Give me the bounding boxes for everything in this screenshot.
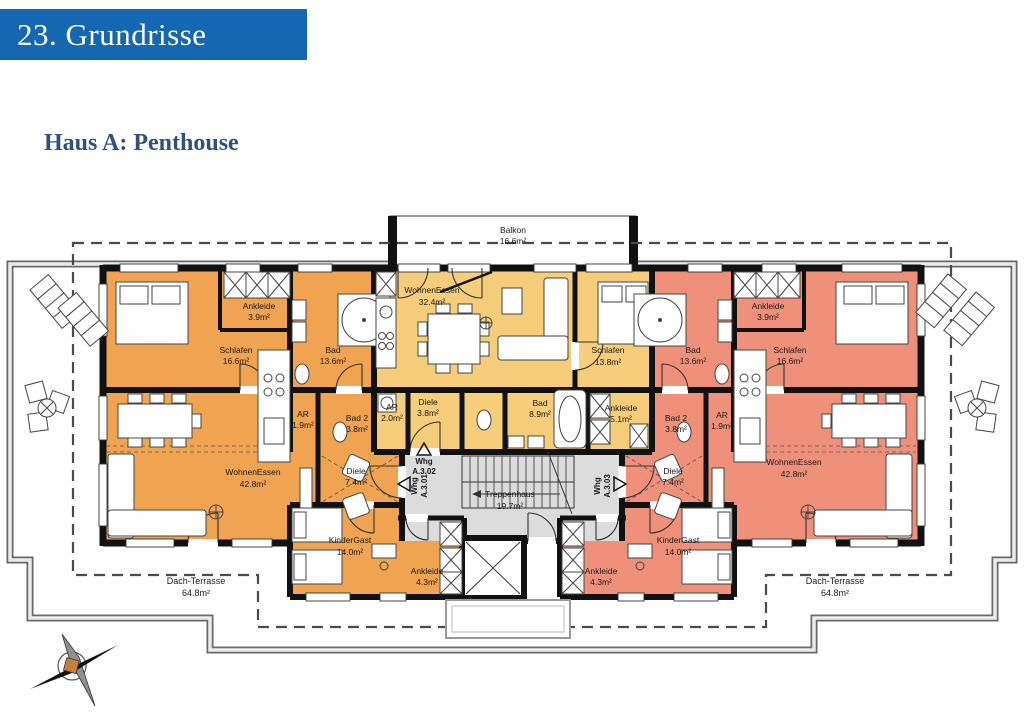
label-whg-a301-l2: A.3.01	[420, 474, 429, 498]
label-a301-schlafen-area: 16.6m²	[223, 356, 250, 366]
label-terrasse-left-area: 64.8m²	[182, 588, 210, 598]
label-a303-ankleide-area: 3.9m²	[757, 312, 779, 322]
label-a303-bad-name: Bad	[685, 345, 700, 355]
label-a302-schlafen-area: 13.8m²	[595, 357, 622, 367]
label-a302-ar-name: AR	[386, 402, 398, 412]
label-whg-a301-l1: Whg	[410, 477, 419, 494]
label-treppenhaus-name: Treppenhaus	[485, 489, 535, 499]
label-a301-bad2-area: 3.8m²	[346, 424, 368, 434]
label-a302-bad-area: 8.9m²	[529, 409, 551, 419]
stair-bulkhead	[446, 600, 570, 638]
lounge-chairs-left	[30, 275, 109, 347]
label-a301-bad-name: Bad	[325, 345, 340, 355]
label-a301-ankleide2-name: Ankleide	[411, 566, 444, 576]
label-balkon-name: Balkon	[500, 225, 526, 235]
label-a302-diele-area: 3.8m²	[417, 408, 439, 418]
label-terrasse-right-area: 64.8m²	[821, 588, 849, 598]
label-a303-kindergast-area: 14.0m²	[665, 547, 692, 557]
label-a302-diele-name: Diele	[418, 397, 438, 407]
label-a301-kindergast-area: 14.0m²	[337, 547, 364, 557]
label-a301-diele-name: Diele	[346, 466, 366, 476]
label-a303-schlafen-name: Schlafen	[773, 345, 806, 355]
label-a301-bad2-name: Bad 2	[346, 413, 368, 423]
label-a303-ar-area: 1.9m²	[711, 421, 733, 431]
label-whg-a303-l2: A.3.03	[603, 474, 612, 498]
label-a302-ankleide-name: Ankleide	[605, 403, 638, 413]
floor-plan: Balkon 16.6m² WohnenEssen 32.4m² Schlafe…	[0, 0, 1024, 724]
label-balkon-area: 16.6m²	[500, 236, 527, 246]
label-a301-ar-name: AR	[297, 409, 309, 419]
label-a303-ankleide2-name: Ankleide	[585, 566, 618, 576]
label-a302-schlafen-name: Schlafen	[591, 345, 624, 355]
label-a301-bad-area: 13.6m²	[320, 356, 347, 366]
elevator	[462, 538, 524, 598]
label-a303-bad2-name: Bad 2	[665, 413, 687, 423]
label-a302-wohnen-area: 32.4m²	[419, 297, 446, 307]
label-whg-a302-l1: Whg	[415, 457, 432, 466]
label-a301-wohnen-name: WohnenEssen	[225, 467, 280, 477]
label-a302-ankleide-area: 5.1m²	[610, 414, 632, 424]
label-a303-ankleide-name: Ankleide	[752, 301, 785, 311]
label-a301-kindergast-name: KinderGast	[329, 535, 372, 545]
label-a301-diele-area: 7.4m²	[345, 477, 367, 487]
label-a303-ar-name: AR	[716, 410, 728, 420]
label-a303-bad2-area: 3.8m²	[665, 424, 687, 434]
label-a301-ankleide2-area: 4.3m²	[416, 577, 438, 587]
label-a303-wohnen-name: WohnenEssen	[766, 457, 821, 467]
label-terrasse-left-name: Dach-Terrasse	[167, 576, 226, 586]
label-a302-bad-name: Bad	[532, 398, 547, 408]
compass-icon	[30, 634, 118, 706]
terrace-table-left	[25, 381, 70, 432]
label-a303-wohnen-area: 42.8m²	[781, 469, 808, 479]
lounge-chairs-right	[916, 274, 995, 346]
page: 23. Grundrisse Haus A: Penthouse	[0, 0, 1024, 724]
label-treppenhaus-area: 19.7m²	[497, 501, 524, 511]
label-whg-a303-l1: Whg	[593, 477, 602, 494]
label-a301-ankleide-name: Ankleide	[243, 301, 276, 311]
label-a303-ankleide2-area: 4.3m²	[590, 577, 612, 587]
label-a303-diele-area: 7.4m²	[662, 477, 684, 487]
terrace-table-right	[954, 381, 999, 432]
label-a301-ar-area: 1.9m²	[292, 420, 314, 430]
label-a302-wohnen-name: WohnenEssen	[404, 285, 459, 295]
label-terrasse-right-name: Dach-Terrasse	[806, 576, 865, 586]
label-a302-ar-area: 2.0m²	[381, 413, 403, 423]
label-a303-schlafen-area: 16.6m²	[777, 356, 804, 366]
label-a303-kindergast-name: KinderGast	[657, 535, 700, 545]
label-a301-ankleide-area: 3.9m²	[248, 312, 270, 322]
label-a303-bad-area: 13.6m²	[680, 356, 707, 366]
label-a301-wohnen-area: 42.8m²	[240, 479, 267, 489]
label-a303-diele-name: Diele	[663, 466, 683, 476]
label-a301-schlafen-name: Schlafen	[219, 345, 252, 355]
